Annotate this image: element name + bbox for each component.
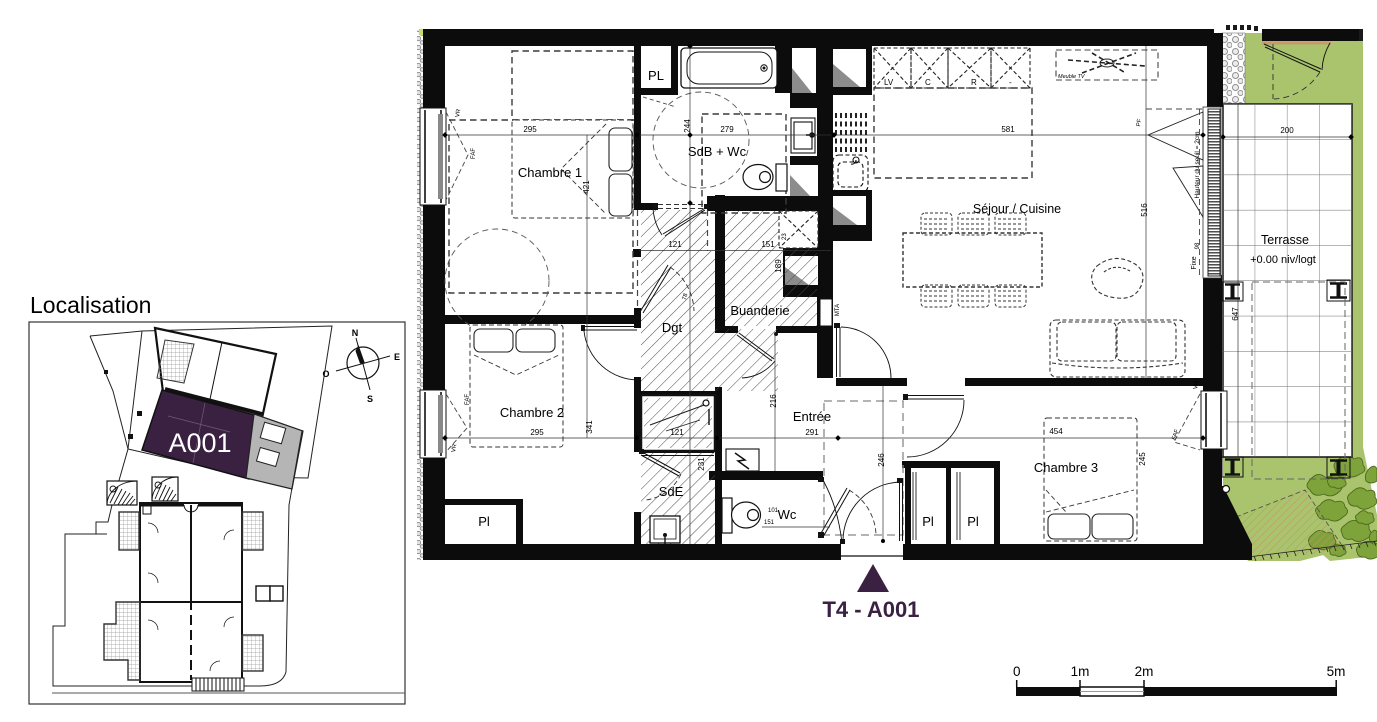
svg-text:O: O xyxy=(322,369,329,379)
svg-text:Meuble TV: Meuble TV xyxy=(1058,74,1086,80)
svg-text:R: R xyxy=(971,78,977,87)
svg-text:FAF: FAF xyxy=(465,394,471,405)
svg-text:295: 295 xyxy=(523,125,537,134)
svg-text:Chambre 3: Chambre 3 xyxy=(1034,460,1098,475)
svg-text:N: N xyxy=(352,328,359,338)
svg-text:647: 647 xyxy=(1231,307,1240,321)
svg-text:421: 421 xyxy=(582,180,591,194)
svg-text:T4 - A001: T4 - A001 xyxy=(822,597,919,622)
svg-text:Pl: Pl xyxy=(922,514,934,529)
svg-text:200: 200 xyxy=(1280,126,1294,135)
svg-text:246: 246 xyxy=(877,453,886,467)
svg-text:Fixe: Fixe xyxy=(1191,256,1198,269)
svg-text:454: 454 xyxy=(1049,427,1063,436)
svg-text:121: 121 xyxy=(670,428,684,437)
svg-text:341: 341 xyxy=(585,420,594,434)
svg-text:5m: 5m xyxy=(1327,664,1346,679)
svg-text:98: 98 xyxy=(1195,242,1201,249)
svg-text:151: 151 xyxy=(764,520,775,526)
svg-text:Buanderie: Buanderie xyxy=(730,303,789,318)
svg-text:FAF: FAF xyxy=(471,148,477,159)
svg-text:295: 295 xyxy=(530,428,544,437)
svg-text:244: 244 xyxy=(683,119,692,133)
svg-text:Chambre 1: Chambre 1 xyxy=(518,165,582,180)
svg-text:Localisation: Localisation xyxy=(30,292,151,318)
svg-text:151: 151 xyxy=(761,240,775,249)
svg-text:Pl: Pl xyxy=(967,514,979,529)
svg-text:245: 245 xyxy=(1138,452,1147,466)
svg-text:231: 231 xyxy=(697,457,706,471)
svg-text:E: E xyxy=(394,352,400,362)
svg-text:PL: PL xyxy=(648,68,664,83)
svg-text:1m: 1m xyxy=(1071,664,1090,679)
svg-text:2m: 2m xyxy=(1135,664,1154,679)
svg-text:Wc: Wc xyxy=(778,507,797,522)
svg-text:0: 0 xyxy=(1013,664,1021,679)
svg-text:Pl: Pl xyxy=(478,514,490,529)
svg-text:23: 23 xyxy=(782,233,788,240)
svg-text:581: 581 xyxy=(1001,125,1015,134)
svg-text:121: 121 xyxy=(668,240,682,249)
svg-text:+0.00 niv/logt: +0.00 niv/logt xyxy=(1250,254,1316,266)
svg-text:MTA: MTA xyxy=(835,304,841,316)
svg-text:SdE: SdE xyxy=(659,484,684,499)
svg-text:A001: A001 xyxy=(168,428,231,458)
svg-text:Chambre 2: Chambre 2 xyxy=(500,405,564,420)
svg-text:-: - xyxy=(1009,78,1012,87)
svg-text:Terrasse: Terrasse xyxy=(1261,233,1309,247)
svg-text:279: 279 xyxy=(720,125,734,134)
svg-text:Dgt: Dgt xyxy=(662,320,683,335)
svg-text:Entrée: Entrée xyxy=(793,409,831,424)
svg-text:101: 101 xyxy=(768,508,779,514)
svg-text:SdB + Wc: SdB + Wc xyxy=(688,144,747,159)
svg-text:Séjour / Cuisine: Séjour / Cuisine xyxy=(973,202,1061,216)
svg-text:216: 216 xyxy=(769,394,778,408)
svg-text:C: C xyxy=(925,78,931,87)
svg-text:516: 516 xyxy=(1140,203,1149,217)
svg-text:S: S xyxy=(367,394,373,404)
svg-text:291: 291 xyxy=(805,428,819,437)
svg-text:Hauteur du seuil = 2cm: Hauteur du seuil = 2cm xyxy=(1194,131,1201,198)
svg-text:189: 189 xyxy=(774,259,783,273)
svg-text:LV: LV xyxy=(884,78,894,87)
